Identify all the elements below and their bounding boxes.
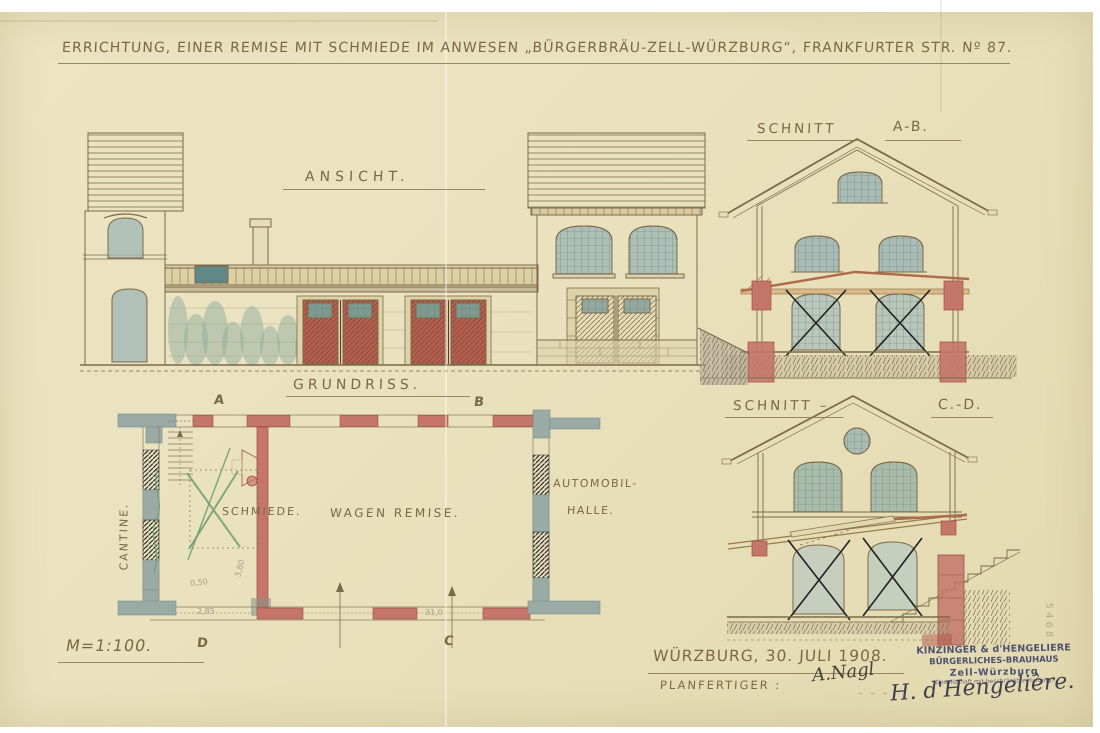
section-marker-b: B — [473, 395, 484, 410]
dimension-note-4: 31,0 — [425, 608, 443, 617]
section-cd-marks-underline — [931, 417, 993, 418]
room-label-automobil-line2: HALLE. — [567, 504, 615, 517]
room-label-schmiede: SCHMIEDE. — [222, 505, 302, 518]
elevation-label-underline — [283, 189, 485, 190]
interior-red-wall — [257, 427, 268, 610]
room-label-automobil-line1: AUTOMOBIL- — [553, 477, 638, 490]
elevation-label: ANSICHT. — [305, 169, 411, 185]
room-label-cantine: CANTINE. — [118, 458, 131, 571]
dimension-note-2: 2,85 — [197, 607, 215, 616]
title-underline — [58, 63, 1010, 64]
section-cd-drawing — [722, 396, 1020, 645]
scale-note: M=1:100. — [64, 636, 154, 655]
dimension-note-1: 0,50 — [190, 577, 209, 588]
crossed-opening-cd-1 — [788, 540, 850, 620]
scanned-plan-document: ERRICHTUNG, EINER REMISE MIT SCHMIEDE IM… — [0, 0, 1100, 733]
scale-underline — [58, 662, 204, 663]
room-label-wagen-remise: WAGEN REMISE. — [330, 506, 461, 520]
section-ab-drawing — [698, 139, 1017, 385]
remise-door-2 — [405, 296, 491, 365]
forge-symbol — [232, 450, 257, 486]
right-wall — [533, 438, 549, 602]
archive-number: 5468 — [1043, 603, 1054, 640]
section-cd-label: SCHNITT – — [733, 398, 830, 414]
elevation-remise-front — [165, 219, 538, 366]
floor-plan-drawing — [118, 410, 600, 648]
left-wall — [143, 427, 159, 602]
crossed-window-ab-2 — [870, 290, 930, 356]
section-ab-marks-underline — [885, 140, 961, 141]
section-cd-underline — [725, 417, 843, 418]
dash-marks: – – – — [858, 688, 890, 699]
lean-to-truss — [741, 272, 969, 294]
elevation-left-building — [83, 133, 183, 365]
section-marker-c: C — [443, 634, 454, 649]
drawing-layer — [0, 0, 1100, 733]
crossed-opening-cd-2 — [863, 538, 922, 616]
drawing-title: ERRICHTUNG, EINER REMISE MIT SCHMIEDE IM… — [62, 40, 1043, 56]
section-ab-marks: A-B. — [893, 119, 930, 135]
top-wall-piers — [193, 416, 533, 427]
elevation-right-building — [528, 133, 705, 365]
section-cd-marks: C.-D. — [938, 397, 983, 413]
section-marker-d: D — [196, 636, 208, 651]
remise-door-1 — [297, 296, 383, 365]
floor-plan-label: GRUNDRISS. — [293, 377, 422, 393]
bottom-wall-piers — [257, 608, 530, 619]
hillside-left-ab — [698, 328, 750, 385]
floor-plan-underline — [286, 396, 470, 397]
fold-crease — [445, 0, 447, 733]
foliage-wash — [168, 296, 311, 366]
section-ab-label: SCHNITT — [757, 121, 837, 137]
paper-creases — [0, 0, 941, 112]
section-marker-a: A — [213, 393, 225, 408]
maker-label: PLANFERTIGER : — [660, 678, 782, 692]
crossed-window-ab-1 — [786, 290, 846, 356]
section-ab-underline — [747, 140, 857, 141]
